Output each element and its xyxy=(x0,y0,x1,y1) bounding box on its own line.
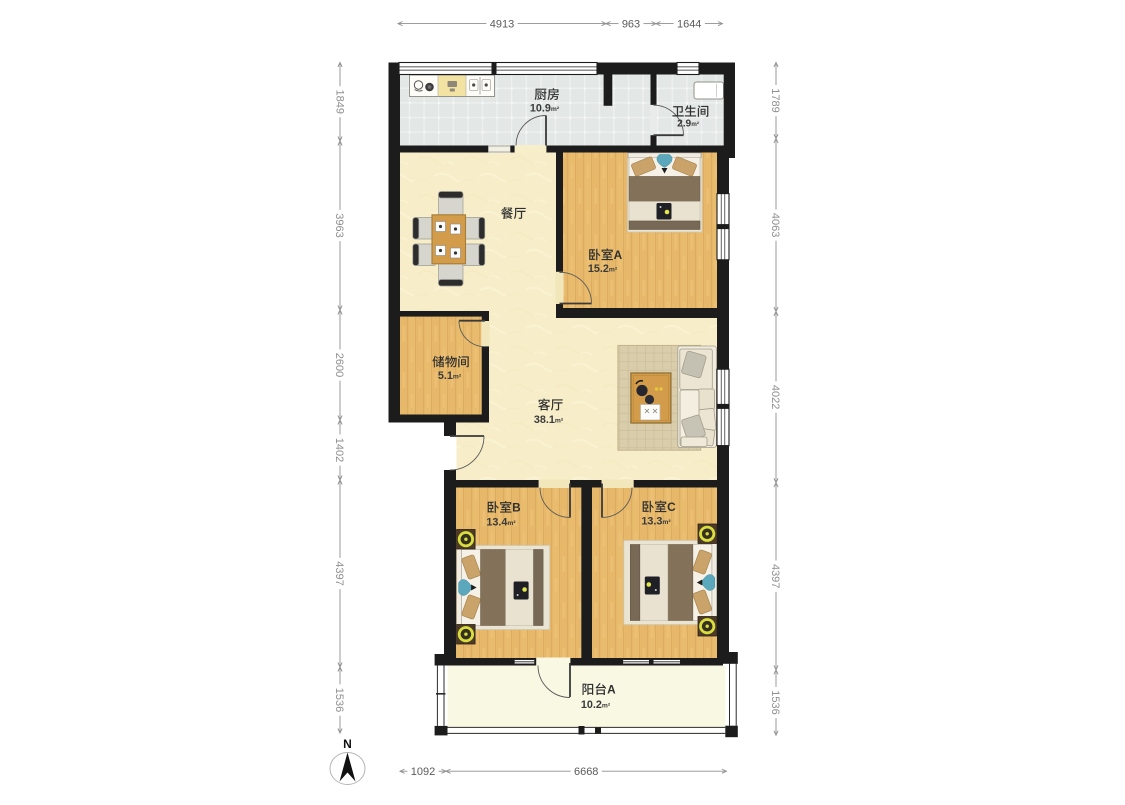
svg-text:1536: 1536 xyxy=(333,688,345,712)
svg-text:1789: 1789 xyxy=(769,88,781,112)
svg-text:2600: 2600 xyxy=(333,353,345,377)
svg-text:4022: 4022 xyxy=(769,385,781,409)
svg-text:3963: 3963 xyxy=(333,213,345,237)
svg-text:4063: 4063 xyxy=(769,213,781,237)
svg-text:963: 963 xyxy=(622,18,640,30)
svg-text:1536: 1536 xyxy=(769,690,781,714)
svg-text:C: C xyxy=(667,500,676,514)
svg-text:B: B xyxy=(512,500,521,514)
svg-text:1092: 1092 xyxy=(411,766,435,778)
svg-text:1849: 1849 xyxy=(333,90,345,114)
svg-text:1402: 1402 xyxy=(333,438,345,462)
svg-text:4913: 4913 xyxy=(490,18,514,30)
svg-text:4397: 4397 xyxy=(769,564,781,588)
svg-text:A: A xyxy=(614,248,623,262)
svg-text:6668: 6668 xyxy=(574,766,598,778)
svg-text:A: A xyxy=(607,682,616,696)
svg-text:2.9m²: 2.9m² xyxy=(677,119,699,130)
svg-text:N: N xyxy=(343,737,352,751)
svg-text:4397: 4397 xyxy=(333,561,345,585)
svg-text:1644: 1644 xyxy=(677,18,701,30)
